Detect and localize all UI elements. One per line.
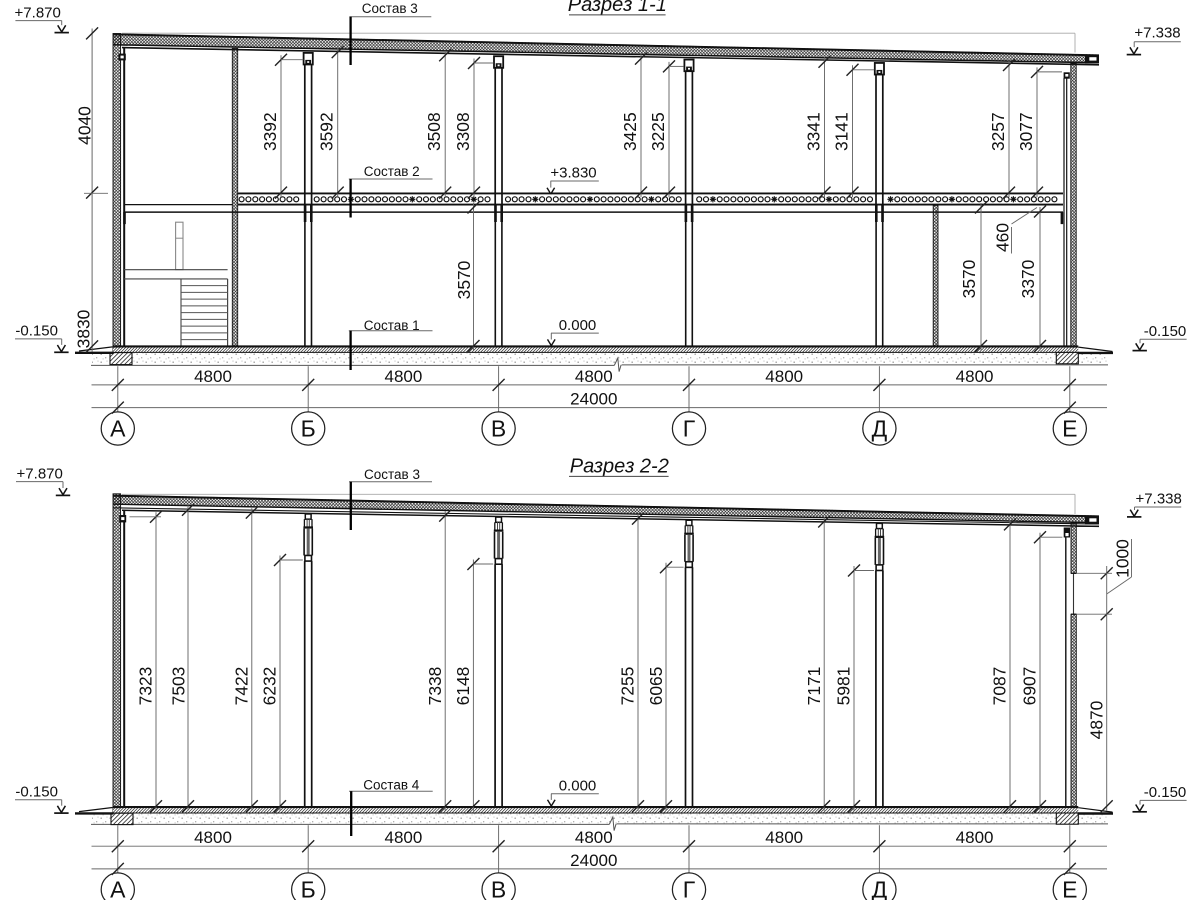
svg-text:4800: 4800 (765, 367, 803, 386)
svg-text:24000: 24000 (570, 390, 617, 409)
svg-text:В: В (491, 416, 506, 442)
svg-text:4800: 4800 (384, 828, 422, 847)
svg-text:7255: 7255 (618, 667, 638, 706)
svg-text:+3.830: +3.830 (550, 165, 596, 182)
svg-text:Б: Б (301, 877, 316, 900)
svg-text:-0.150: -0.150 (15, 783, 58, 800)
svg-text:Состав 2: Состав 2 (364, 164, 420, 179)
svg-text:3077: 3077 (1016, 112, 1036, 151)
svg-text:4800: 4800 (384, 367, 422, 386)
svg-text:7503: 7503 (168, 667, 188, 706)
svg-text:Состав 4: Состав 4 (363, 777, 419, 792)
svg-text:4800: 4800 (956, 367, 994, 386)
svg-text:1000: 1000 (1113, 539, 1133, 578)
svg-text:3508: 3508 (424, 112, 444, 151)
svg-text:5981: 5981 (834, 667, 854, 706)
svg-text:Б: Б (301, 416, 316, 442)
svg-text:7323: 7323 (136, 667, 156, 706)
svg-text:3425: 3425 (620, 112, 640, 151)
svg-text:24000: 24000 (570, 851, 617, 870)
svg-text:Разрез 2-2: Разрез 2-2 (570, 455, 669, 477)
svg-text:3257: 3257 (988, 112, 1008, 151)
svg-text:+7.338: +7.338 (1136, 490, 1182, 507)
svg-text:Е: Е (1062, 877, 1077, 900)
svg-text:4800: 4800 (575, 367, 613, 386)
svg-text:3592: 3592 (317, 112, 337, 151)
svg-text:3308: 3308 (453, 112, 473, 151)
svg-text:6232: 6232 (260, 667, 280, 706)
svg-text:6148: 6148 (453, 667, 473, 706)
svg-text:В: В (491, 877, 506, 900)
svg-text:Состав 3: Состав 3 (362, 1, 418, 16)
svg-text:4800: 4800 (194, 367, 232, 386)
svg-text:4800: 4800 (194, 828, 232, 847)
svg-text:7338: 7338 (425, 667, 445, 706)
svg-text:4040: 4040 (74, 106, 94, 145)
svg-text:6065: 6065 (646, 667, 666, 706)
svg-text:7087: 7087 (990, 667, 1010, 706)
svg-text:Д: Д (872, 877, 888, 900)
svg-text:+7.870: +7.870 (15, 5, 61, 22)
svg-text:3570: 3570 (959, 260, 979, 299)
svg-text:3392: 3392 (260, 112, 280, 151)
svg-text:+7.338: +7.338 (1134, 25, 1180, 42)
svg-text:-0.150: -0.150 (15, 323, 58, 340)
svg-text:4800: 4800 (956, 828, 994, 847)
svg-text:3341: 3341 (803, 112, 823, 151)
svg-text:Д: Д (872, 416, 888, 442)
svg-text:0.000: 0.000 (559, 778, 597, 795)
svg-text:3830: 3830 (74, 310, 94, 349)
svg-text:7171: 7171 (804, 667, 824, 706)
svg-text:3370: 3370 (1018, 260, 1038, 299)
svg-text:3141: 3141 (831, 112, 851, 151)
svg-text:+7.870: +7.870 (17, 465, 63, 482)
svg-text:4870: 4870 (1086, 701, 1106, 740)
svg-text:0.000: 0.000 (559, 317, 597, 334)
svg-text:Разрез 1-1: Разрез 1-1 (568, 0, 667, 16)
svg-text:7422: 7422 (232, 667, 252, 706)
svg-text:3225: 3225 (648, 112, 668, 151)
svg-text:6907: 6907 (1020, 667, 1040, 706)
svg-text:-0.150: -0.150 (1144, 784, 1187, 801)
svg-text:4800: 4800 (575, 828, 613, 847)
svg-text:А: А (110, 416, 126, 442)
svg-text:Состав 3: Состав 3 (364, 467, 420, 482)
svg-text:Г: Г (683, 416, 696, 442)
svg-text:460: 460 (993, 223, 1013, 252)
svg-text:Г: Г (683, 877, 696, 900)
svg-text:А: А (110, 877, 126, 900)
svg-text:3570: 3570 (454, 261, 474, 300)
svg-text:4800: 4800 (765, 828, 803, 847)
svg-text:Е: Е (1062, 416, 1077, 442)
svg-text:-0.150: -0.150 (1144, 323, 1187, 340)
